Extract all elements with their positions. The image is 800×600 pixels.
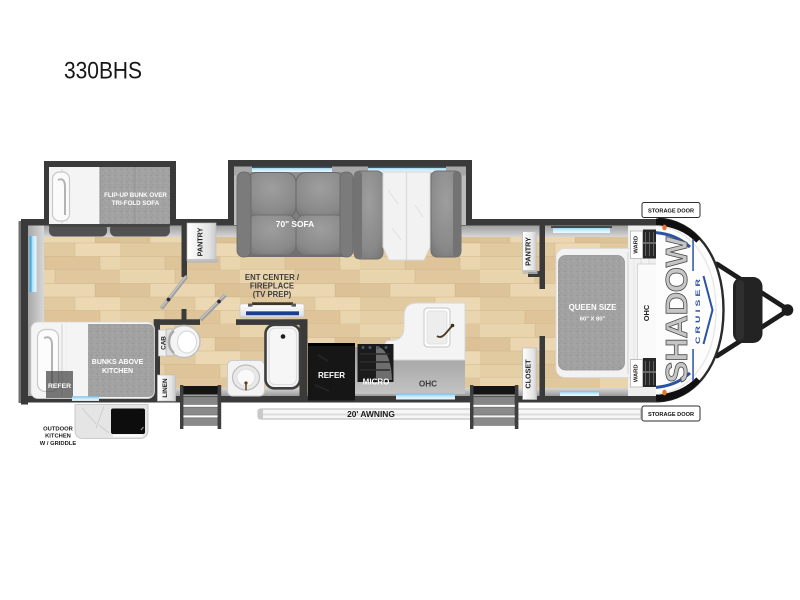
svg-text:PANTRY: PANTRY	[196, 227, 205, 256]
svg-text:330BHS: 330BHS	[64, 58, 142, 85]
svg-text:KITCHEN: KITCHEN	[102, 368, 133, 375]
svg-text:60" X 80": 60" X 80"	[580, 317, 606, 323]
svg-text:CLOSET: CLOSET	[524, 359, 533, 389]
svg-text:FLIP-UP BUNK OVER: FLIP-UP BUNK OVER	[104, 192, 167, 199]
svg-text:CRUISER: CRUISER	[695, 276, 702, 344]
svg-text:MICRO: MICRO	[363, 378, 390, 387]
svg-text:WARD: WARD	[633, 364, 639, 382]
svg-text:70" SOFA: 70" SOFA	[276, 219, 314, 229]
svg-text:OUTDOOR: OUTDOOR	[43, 427, 73, 433]
svg-text:LINEN: LINEN	[162, 378, 169, 398]
svg-text:WARD: WARD	[633, 236, 639, 254]
svg-text:TRI-FOLD SOFA: TRI-FOLD SOFA	[112, 200, 160, 207]
svg-text:KITCHEN: KITCHEN	[45, 434, 71, 440]
svg-text:PANTRY: PANTRY	[524, 237, 533, 266]
svg-text:20' AWNING: 20' AWNING	[347, 409, 395, 419]
svg-text:SHADOW: SHADOW	[659, 236, 694, 383]
svg-text:REFER: REFER	[318, 371, 345, 380]
svg-text:(TV PREP): (TV PREP)	[253, 290, 292, 299]
svg-text:STORAGE DOOR: STORAGE DOOR	[648, 412, 694, 418]
svg-text:BUNKS ABOVE: BUNKS ABOVE	[92, 359, 144, 366]
svg-text:QUEEN SIZE: QUEEN SIZE	[569, 303, 617, 312]
svg-text:W / GRIDDLE: W / GRIDDLE	[40, 441, 77, 447]
svg-text:OHC: OHC	[642, 304, 651, 321]
svg-text:STORAGE DOOR: STORAGE DOOR	[648, 208, 694, 214]
svg-text:OHC: OHC	[419, 380, 437, 389]
svg-text:REFER: REFER	[48, 383, 71, 390]
